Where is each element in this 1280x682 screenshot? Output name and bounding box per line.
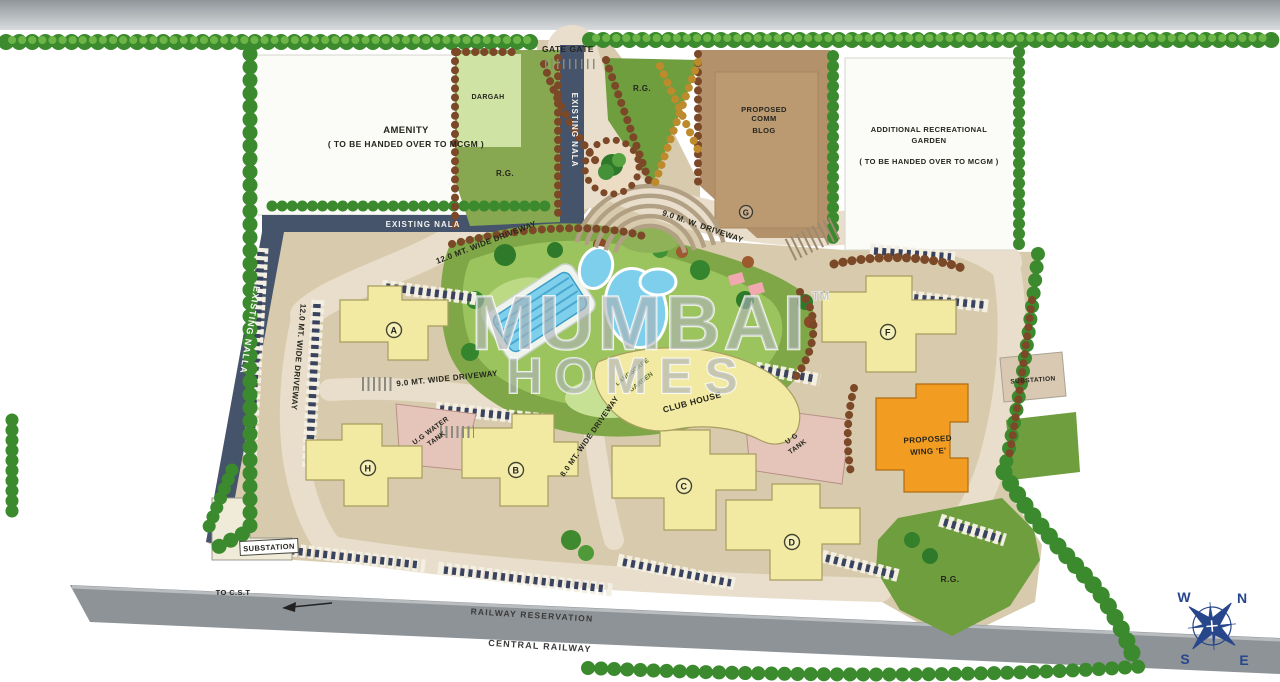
rg-label-top-left: R.G. xyxy=(496,169,514,178)
marker-b-letter: B xyxy=(513,466,520,476)
tree-cluster xyxy=(690,260,710,280)
garden-note: ( TO BE HANDED OVER TO MCGM ) xyxy=(859,157,998,166)
amenity-note: ( TO BE HANDED OVER TO MCGM ) xyxy=(328,139,484,149)
comm-label-1: PROPOSED xyxy=(741,105,787,114)
additional-garden-plot xyxy=(845,58,1016,250)
to-cst-label: TO C.S.T xyxy=(216,588,251,597)
nala-horizontal-label: EXISTING NALA xyxy=(386,220,461,229)
site-plan-map: AMENITY ( TO BE HANDED OVER TO MCGM ) EX… xyxy=(0,0,1280,682)
tree xyxy=(904,532,920,548)
tree xyxy=(922,548,938,564)
compass-e: E xyxy=(1239,652,1248,668)
marker-g: G xyxy=(740,206,753,219)
marker-c: C xyxy=(677,479,692,494)
comm-plot xyxy=(697,50,830,238)
tree-cluster xyxy=(494,244,516,266)
amenity-title: AMENITY xyxy=(383,125,429,136)
dargah-label: DARGAH xyxy=(471,94,504,101)
garden-title-1: ADDITIONAL RECREATIONAL xyxy=(871,125,987,134)
marker-h-letter: H xyxy=(365,464,372,474)
roundabout xyxy=(585,140,639,194)
wing-e-label-2: WING 'E' xyxy=(910,446,947,457)
top-gray-band xyxy=(0,0,1280,30)
tree xyxy=(578,545,594,561)
compass-s: S xyxy=(1180,651,1189,667)
tree-cluster xyxy=(547,242,563,258)
roundabout-tree xyxy=(612,153,626,167)
comm-plot-inner xyxy=(715,72,818,228)
marker-c-letter: C xyxy=(681,482,688,492)
comm-label-2: COMM xyxy=(751,114,776,123)
marker-f: F xyxy=(881,325,896,340)
marker-d: D xyxy=(785,535,800,550)
marker-f-letter: F xyxy=(885,328,891,338)
tree xyxy=(561,530,581,550)
compass-w: W xyxy=(1177,589,1191,605)
marker-a-letter: A xyxy=(391,326,398,336)
shrub-cluster xyxy=(742,256,754,268)
watermark-line2: HOMES xyxy=(506,348,749,404)
garden-title-2: GARDEN xyxy=(912,136,947,145)
marker-a: A xyxy=(387,323,402,338)
rg-label-top-right: R.G. xyxy=(633,84,651,93)
site-plan-stage: AMENITY ( TO BE HANDED OVER TO MCGM ) EX… xyxy=(0,0,1280,682)
marker-g-letter: G xyxy=(743,209,750,218)
roundabout-tree xyxy=(598,164,614,180)
rg-label-bottom: R.G. xyxy=(940,574,959,584)
marker-b: B xyxy=(509,463,524,478)
comm-label-3: BLOG xyxy=(752,126,775,135)
nala-vertical-label: EXISTING NALA xyxy=(570,93,579,168)
watermark-tm: TM xyxy=(812,289,829,303)
gate-label: GATE GATE xyxy=(542,44,594,54)
compass-n: N xyxy=(1237,590,1247,606)
marker-h: H xyxy=(361,461,376,476)
marker-d-letter: D xyxy=(789,538,796,548)
